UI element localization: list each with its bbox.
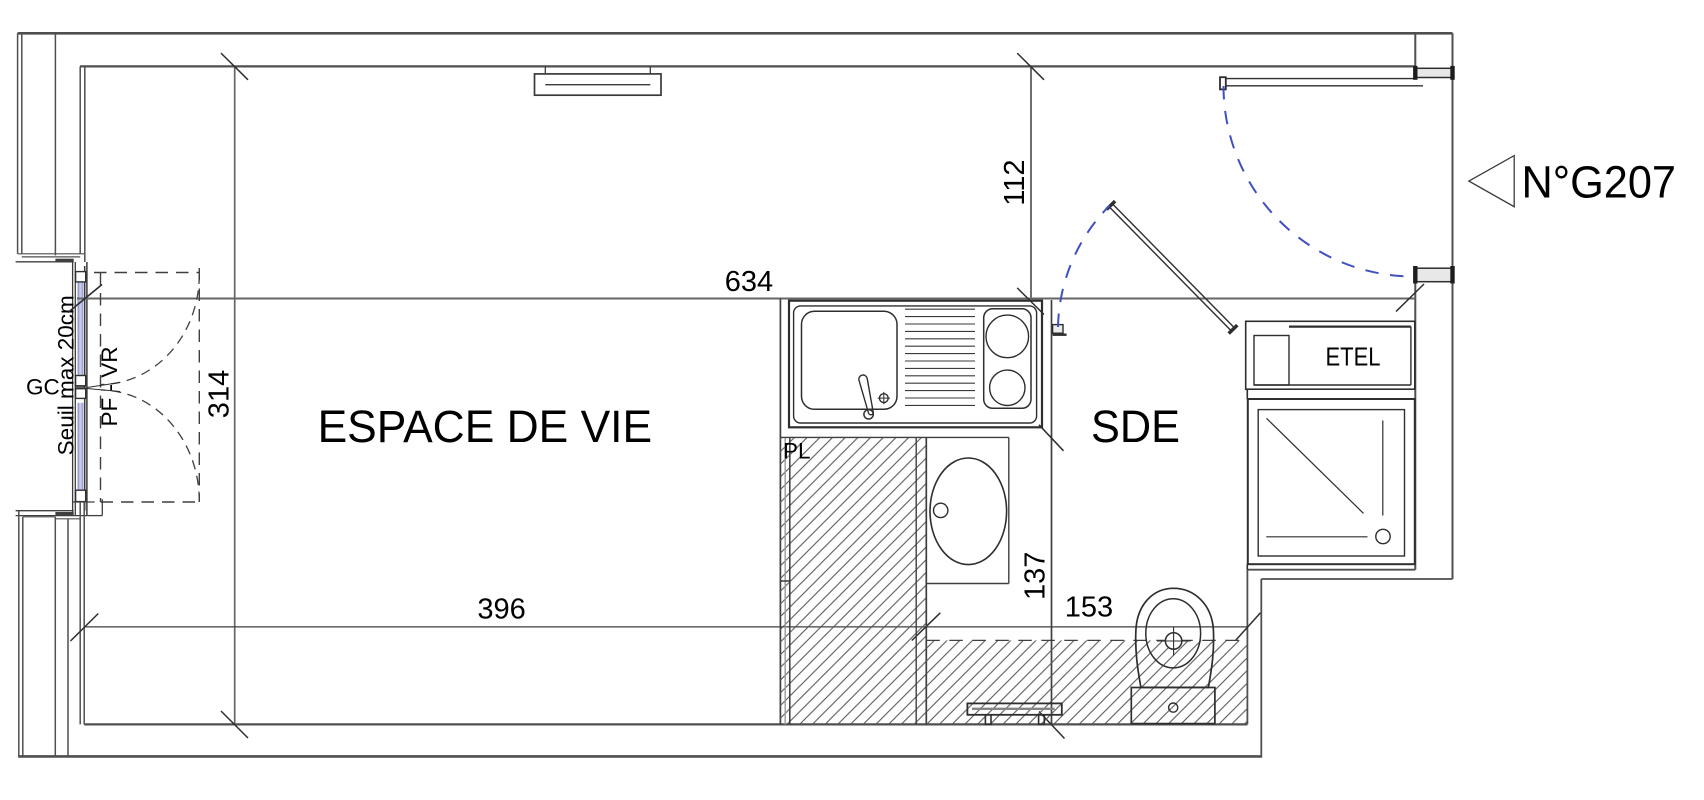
svg-text:PF - VR: PF - VR [97, 346, 122, 426]
svg-text:137: 137 [1020, 552, 1052, 600]
svg-text:Seuil max 20cm: Seuil max 20cm [54, 295, 79, 455]
svg-text:ETEL: ETEL [1326, 341, 1381, 371]
svg-text:ESPACE DE VIE: ESPACE DE VIE [318, 401, 652, 452]
svg-text:112: 112 [999, 159, 1031, 205]
svg-text:153: 153 [1065, 592, 1113, 624]
svg-text:314: 314 [204, 370, 236, 418]
svg-text:396: 396 [477, 594, 525, 626]
svg-text:PL: PL [783, 438, 811, 463]
svg-text:N°G207: N°G207 [1522, 157, 1677, 208]
svg-text:634: 634 [725, 266, 773, 298]
svg-text:SDE: SDE [1091, 401, 1180, 452]
